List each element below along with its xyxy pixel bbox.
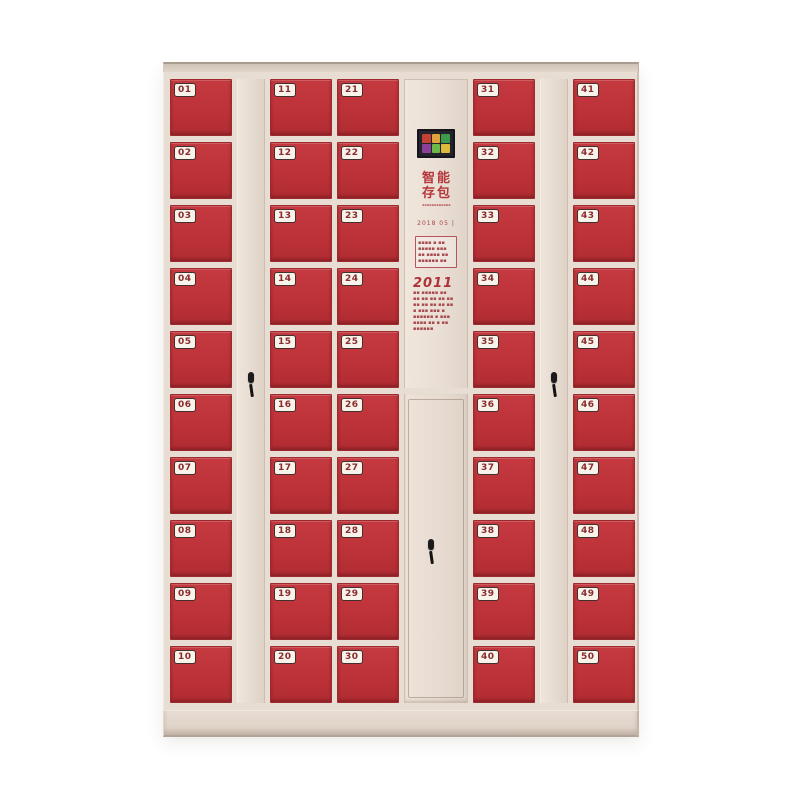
locker-door[interactable]: 40: [473, 646, 535, 703]
locker-door[interactable]: 31: [473, 79, 535, 136]
locker-door[interactable]: 04: [170, 268, 232, 325]
locker-number-badge: 05: [174, 335, 196, 349]
locker-door[interactable]: 39: [473, 583, 535, 640]
locker-number-badge: 26: [341, 398, 363, 412]
locker-door[interactable]: 49: [573, 583, 635, 640]
locker-door[interactable]: 48: [573, 520, 635, 577]
locker-number-badge: 37: [477, 461, 499, 475]
cabinet-base: [163, 710, 639, 737]
locker-number-badge: 18: [274, 524, 296, 538]
cabinet-top-edge: [163, 62, 639, 72]
locker-number-badge: 43: [577, 209, 599, 223]
product-image: 0102030405060708091011121314151617181920…: [0, 0, 800, 800]
locker-number-badge: 22: [341, 146, 363, 160]
locker-number-badge: 45: [577, 335, 599, 349]
locker-number-badge: 14: [274, 272, 296, 286]
locker-number-badge: 11: [274, 83, 296, 97]
locker-number-badge: 47: [577, 461, 599, 475]
center-service-door[interactable]: [404, 394, 468, 703]
locker-door[interactable]: 09: [170, 583, 232, 640]
locker-number-badge: 02: [174, 146, 196, 160]
locker-door[interactable]: 12: [270, 142, 332, 199]
locker-number-badge: 34: [477, 272, 499, 286]
locker-door[interactable]: 06: [170, 394, 232, 451]
locker-number-badge: 48: [577, 524, 599, 538]
cabinet-body: 0102030405060708091011121314151617181920…: [163, 72, 639, 710]
locker-number-badge: 44: [577, 272, 599, 286]
locker-number-badge: 16: [274, 398, 296, 412]
center-column: 智能存包 ▪▪▪▪▪▪▪▪▪▪▪▪ 2018 05 | ▪▪▪▪ ▪ ▪▪▪▪▪…: [404, 79, 468, 703]
locker-door[interactable]: 18: [270, 520, 332, 577]
locker-door[interactable]: 02: [170, 142, 232, 199]
locker-door[interactable]: 08: [170, 520, 232, 577]
locker-number-badge: 27: [341, 461, 363, 475]
locker-door[interactable]: 22: [337, 142, 399, 199]
locker-number-badge: 20: [274, 650, 296, 664]
locker-number-badge: 30: [341, 650, 363, 664]
locker-number-badge: 17: [274, 461, 296, 475]
locker-number-badge: 49: [577, 587, 599, 601]
brand-logo-char: 能: [436, 171, 451, 186]
locker-door[interactable]: 20: [270, 646, 332, 703]
locker-number-badge: 38: [477, 524, 499, 538]
locker-door[interactable]: 36: [473, 394, 535, 451]
locker-door[interactable]: 46: [573, 394, 635, 451]
locker-number-badge: 04: [174, 272, 196, 286]
locker-door[interactable]: 05: [170, 331, 232, 388]
screen-pixel: [441, 134, 450, 143]
key-lock-icon[interactable]: [427, 539, 435, 566]
locker-number-badge: 01: [174, 83, 196, 97]
locker-door[interactable]: 25: [337, 331, 399, 388]
locker-door[interactable]: 32: [473, 142, 535, 199]
door-outline: [408, 399, 464, 698]
notice-line: ▪▪▪▪▪▪ ▪▪: [418, 258, 454, 264]
brand-logo-char: 包: [436, 186, 451, 201]
locker-number-badge: 35: [477, 335, 499, 349]
locker-number-badge: 31: [477, 83, 499, 97]
locker-number-badge: 09: [174, 587, 196, 601]
locker-number-badge: 25: [341, 335, 363, 349]
locker-number-badge: 13: [274, 209, 296, 223]
screen-pixel: [441, 144, 450, 153]
locker-number-badge: 46: [577, 398, 599, 412]
locker-number-badge: 28: [341, 524, 363, 538]
locker-door[interactable]: 07: [170, 457, 232, 514]
locker-door[interactable]: 34: [473, 268, 535, 325]
notice-box: ▪▪▪▪ ▪ ▪▪▪▪▪▪▪ ▪▪▪▪▪ ▪▪▪▪ ▪▪▪▪▪▪▪▪ ▪▪: [415, 236, 457, 268]
locker-door[interactable]: 33: [473, 205, 535, 262]
locker-door[interactable]: 41: [573, 79, 635, 136]
divider-left: [237, 79, 265, 703]
divider-right: [540, 79, 568, 703]
locker-number-badge: 07: [174, 461, 196, 475]
key-lock-icon[interactable]: [550, 372, 558, 399]
locker-door[interactable]: 43: [573, 205, 635, 262]
locker-door[interactable]: 11: [270, 79, 332, 136]
locker-door[interactable]: 10: [170, 646, 232, 703]
screen-pixel: [422, 144, 431, 153]
locker-door[interactable]: 14: [270, 268, 332, 325]
locker-number-badge: 06: [174, 398, 196, 412]
locker-number-badge: 03: [174, 209, 196, 223]
locker-door[interactable]: 15: [270, 331, 332, 388]
locker-number-badge: 19: [274, 587, 296, 601]
locker-number-badge: 23: [341, 209, 363, 223]
calendar-year: 2011: [413, 277, 459, 290]
locker-door[interactable]: 26: [337, 394, 399, 451]
locker-number-badge: 42: [577, 146, 599, 160]
locker-number-badge: 29: [341, 587, 363, 601]
locker-door[interactable]: 28: [337, 520, 399, 577]
locker-door[interactable]: 23: [337, 205, 399, 262]
locker-door[interactable]: 38: [473, 520, 535, 577]
locker-number-badge: 39: [477, 587, 499, 601]
door-column-5: 41424344454647484950: [573, 79, 635, 703]
locker-door[interactable]: 17: [270, 457, 332, 514]
locker-door[interactable]: 19: [270, 583, 332, 640]
door-column-3: 21222324252627282930: [337, 79, 399, 703]
locker-number-badge: 24: [341, 272, 363, 286]
locker-door[interactable]: 01: [170, 79, 232, 136]
locker-door[interactable]: 13: [270, 205, 332, 262]
screen-pixel: [432, 144, 441, 153]
locker-door[interactable]: 27: [337, 457, 399, 514]
locker-cabinet: 0102030405060708091011121314151617181920…: [163, 62, 639, 732]
brand-logo-caption: ▪▪▪▪▪▪▪▪▪▪▪▪: [422, 204, 450, 208]
control-panel: 智能存包 ▪▪▪▪▪▪▪▪▪▪▪▪ 2018 05 | ▪▪▪▪ ▪ ▪▪▪▪▪…: [404, 79, 468, 388]
calendar-card: 2011 ▪▪ ▪▪▪▪▪ ▪▪▪▪ ▪▪ ▪▪ ▪▪ ▪▪▪▪ ▪▪ ▪▪ ▪…: [413, 277, 459, 332]
locker-door[interactable]: 42: [573, 142, 635, 199]
key-lock-icon[interactable]: [247, 372, 255, 399]
locker-number-badge: 08: [174, 524, 196, 538]
locker-number-badge: 32: [477, 146, 499, 160]
locker-door[interactable]: 45: [573, 331, 635, 388]
locker-door[interactable]: 37: [473, 457, 535, 514]
locker-door[interactable]: 24: [337, 268, 399, 325]
locker-door[interactable]: 03: [170, 205, 232, 262]
locker-number-badge: 15: [274, 335, 296, 349]
locker-door[interactable]: 29: [337, 583, 399, 640]
locker-door[interactable]: 30: [337, 646, 399, 703]
locker-door[interactable]: 44: [573, 268, 635, 325]
door-column-4: 31323334353637383940: [473, 79, 535, 703]
door-column-2: 11121314151617181920: [270, 79, 332, 703]
calendar-line: ▪▪▪▪▪▪: [413, 326, 459, 332]
brand-logo: 智能存包: [419, 171, 453, 201]
locker-door[interactable]: 35: [473, 331, 535, 388]
panel-date-text: 2018 05 |: [417, 220, 455, 227]
locker-number-badge: 40: [477, 650, 499, 664]
locker-number-badge: 41: [577, 83, 599, 97]
display-screen[interactable]: [417, 129, 455, 158]
locker-number-badge: 12: [274, 146, 296, 160]
locker-number-badge: 21: [341, 83, 363, 97]
brand-logo-char: 智: [421, 171, 436, 186]
locker-door[interactable]: 47: [573, 457, 635, 514]
screen-pixel: [432, 134, 441, 143]
locker-door[interactable]: 16: [270, 394, 332, 451]
screen-pixel: [422, 134, 431, 143]
locker-door[interactable]: 21: [337, 79, 399, 136]
door-column-1: 01020304050607080910: [170, 79, 232, 703]
locker-number-badge: 10: [174, 650, 196, 664]
locker-number-badge: 36: [477, 398, 499, 412]
locker-number-badge: 50: [577, 650, 599, 664]
brand-logo-char: 存: [421, 186, 436, 201]
locker-number-badge: 33: [477, 209, 499, 223]
locker-door[interactable]: 50: [573, 646, 635, 703]
